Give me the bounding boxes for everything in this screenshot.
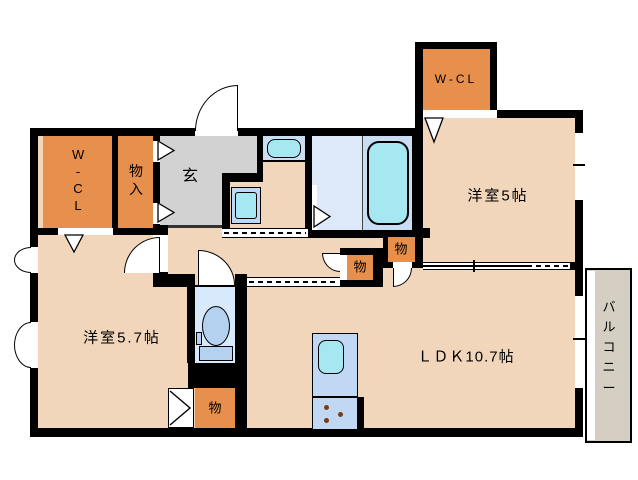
- storage-left-door-strip: [340, 255, 347, 280]
- hall-ldk-sliding-door-dash: [249, 281, 338, 283]
- window-bedroom5-east-tick: [573, 164, 585, 166]
- wall-toilet-right: [235, 274, 247, 430]
- window-bedroom57-west-1: [30, 247, 38, 273]
- window-bedroom5-east: [575, 133, 583, 200]
- genkan-step-line: [160, 225, 222, 228]
- label-genkan: 玄: [182, 169, 198, 185]
- balcony-window-strip: [587, 271, 595, 440]
- bedroom5-ldk-partition-cap: [570, 262, 583, 270]
- window-ldk-east-tick: [573, 338, 585, 340]
- washroom-sliding-door-dash: [224, 232, 306, 234]
- bedroom5-ldk-partition-tick: [473, 260, 475, 272]
- label-storage-bedroom: 物: [208, 402, 221, 415]
- toilet-tank: [199, 346, 233, 361]
- stove-burner-1: [324, 405, 329, 410]
- kitchen-side-shadow: [358, 397, 364, 430]
- label-wcl-left: W-CL: [72, 147, 84, 215]
- wall-bath-right: [412, 136, 423, 230]
- label-bedroom57: 洋室5.7帖: [83, 331, 161, 346]
- monoiri-door-triangle-2: [157, 202, 176, 224]
- wall-genkan-wash-h: [222, 173, 263, 182]
- monoiri-door-triangle-1: [157, 140, 176, 162]
- stove-burner-3: [324, 418, 329, 423]
- bathroom-door-triangle: [313, 205, 332, 229]
- bedroom5-ldk-partition-rail: [423, 265, 527, 267]
- label-ldk: ＬＤＫ10.7帖: [417, 350, 514, 365]
- window-bedroom57-west-2-arc: [14, 322, 31, 368]
- entrance-door-arc: [195, 85, 238, 131]
- label-monoiri: 物入: [129, 162, 144, 198]
- window-bedroom57-west-2: [30, 322, 38, 368]
- label-balcony: バルコニー: [602, 298, 616, 399]
- toilet-bowl: [202, 306, 230, 346]
- bathtub: [367, 141, 409, 225]
- window-bedroom57-west-1-arc: [14, 247, 31, 273]
- laundry-pan-edge: [263, 160, 305, 162]
- wcl-left-door-triangle: [64, 234, 84, 254]
- vanity-sink: [235, 192, 257, 219]
- wall-wash-bath: [305, 136, 312, 230]
- label-wcl-top: W-CL: [435, 73, 477, 85]
- stove-burner-2: [338, 412, 343, 417]
- wcl-top-door-triangle: [424, 117, 444, 144]
- label-storage-hall-left: 物: [353, 261, 366, 274]
- bedroom5-ldk-partition-dash: [527, 265, 570, 267]
- wall-under-toilet: [188, 363, 247, 388]
- kitchen-sink: [318, 340, 344, 374]
- toilet-flush-handle: [196, 332, 202, 345]
- washing-machine: [267, 139, 301, 158]
- kitchen-counter-divider: [313, 396, 357, 398]
- window-ldk-east: [575, 296, 583, 388]
- label-bedroom5: 洋室5帖: [467, 189, 528, 204]
- floor-plan-canvas: W-CL 洋室5帖 W-CL 物入 玄 洋室5.7帖 ＬＤＫ10.7帖 物 物 …: [0, 0, 638, 480]
- wall-hall-toilet-top: [160, 274, 195, 287]
- storage-bedroom-bifold-chevron: [168, 388, 194, 428]
- wall-toilet-left: [187, 287, 195, 363]
- label-storage-hall-right: 物: [394, 243, 407, 256]
